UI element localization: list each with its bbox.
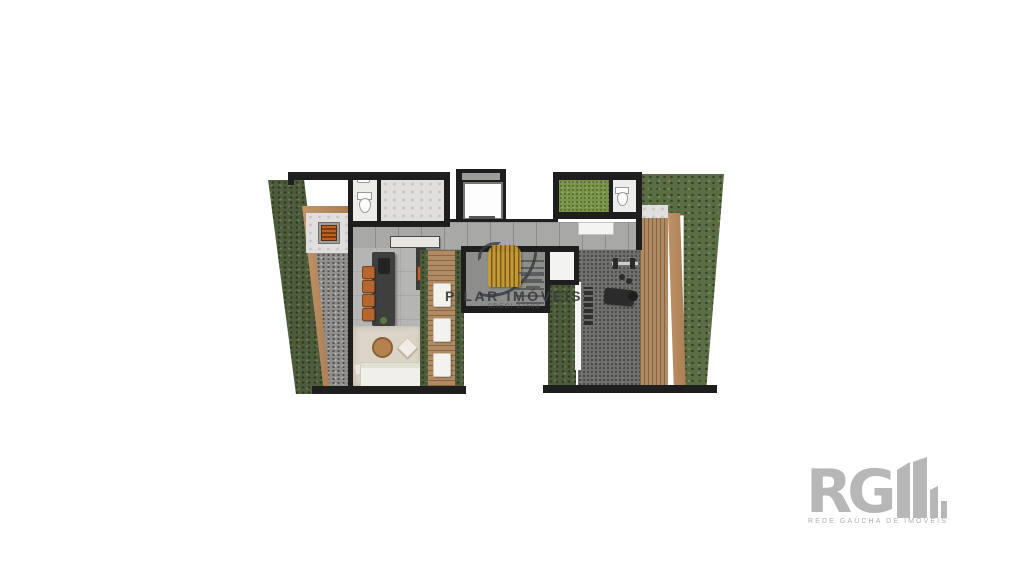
lounger-cushion bbox=[433, 353, 451, 377]
wall bbox=[377, 180, 381, 224]
rg-building-tower-icon bbox=[897, 462, 910, 518]
island-plant-icon bbox=[380, 317, 387, 324]
watermark-pilar-imoveis: PILAR IMÓVEIS CRECI 27503 bbox=[440, 235, 600, 320]
lounger-cushion bbox=[433, 318, 451, 342]
corridor-counter bbox=[578, 222, 614, 235]
wall bbox=[348, 178, 353, 392]
corridor-bench bbox=[390, 236, 440, 248]
bar-stool bbox=[362, 308, 375, 321]
wall bbox=[636, 172, 642, 250]
wall bbox=[609, 180, 613, 218]
page: PILAR IMÓVEIS CRECI 27503 RG REDE GAÚCHA… bbox=[0, 0, 1024, 575]
elevator-machine bbox=[462, 173, 500, 180]
wall bbox=[288, 172, 450, 180]
bar-stool bbox=[362, 266, 375, 279]
wall bbox=[553, 172, 642, 180]
kettlebell-icon bbox=[626, 278, 632, 284]
watermark-brand-text: PILAR IMÓVEIS bbox=[444, 288, 584, 304]
barbell-plate-icon bbox=[613, 258, 618, 269]
pilar-logo-column-icon bbox=[488, 245, 521, 287]
bottom-wall-left bbox=[312, 386, 466, 394]
bar-stool bbox=[362, 294, 375, 307]
barbell-plate-icon bbox=[630, 258, 635, 269]
rg-logo: RG REDE GAÚCHA DE IMÓVEIS bbox=[800, 452, 960, 532]
grass-patch bbox=[559, 180, 609, 213]
planter-strip bbox=[420, 250, 428, 390]
wall bbox=[448, 219, 558, 222]
weight-plate-icon bbox=[628, 291, 638, 301]
rg-initials: RG bbox=[806, 464, 891, 520]
utility-room-floor bbox=[381, 180, 444, 224]
deck-landing bbox=[640, 205, 668, 218]
island-sink-icon bbox=[378, 258, 390, 274]
coffee-table-icon bbox=[372, 337, 393, 358]
grill-grate-icon bbox=[321, 225, 337, 241]
rg-building-bar-icon bbox=[930, 486, 938, 518]
wall bbox=[553, 212, 641, 219]
wall bbox=[288, 172, 294, 185]
bottom-wall-right bbox=[543, 385, 717, 393]
deck-right bbox=[640, 218, 668, 388]
watermark-creci-text: CRECI 27503 bbox=[444, 303, 584, 310]
elevator-car bbox=[463, 182, 503, 220]
rg-building-tower-icon bbox=[913, 457, 927, 518]
rg-building-bar-icon bbox=[941, 501, 947, 518]
kettlebell-icon bbox=[619, 274, 625, 280]
bar-stool bbox=[362, 280, 375, 293]
rg-tagline: REDE GAÚCHA DE IMÓVEIS bbox=[802, 518, 954, 525]
wall bbox=[348, 221, 450, 227]
